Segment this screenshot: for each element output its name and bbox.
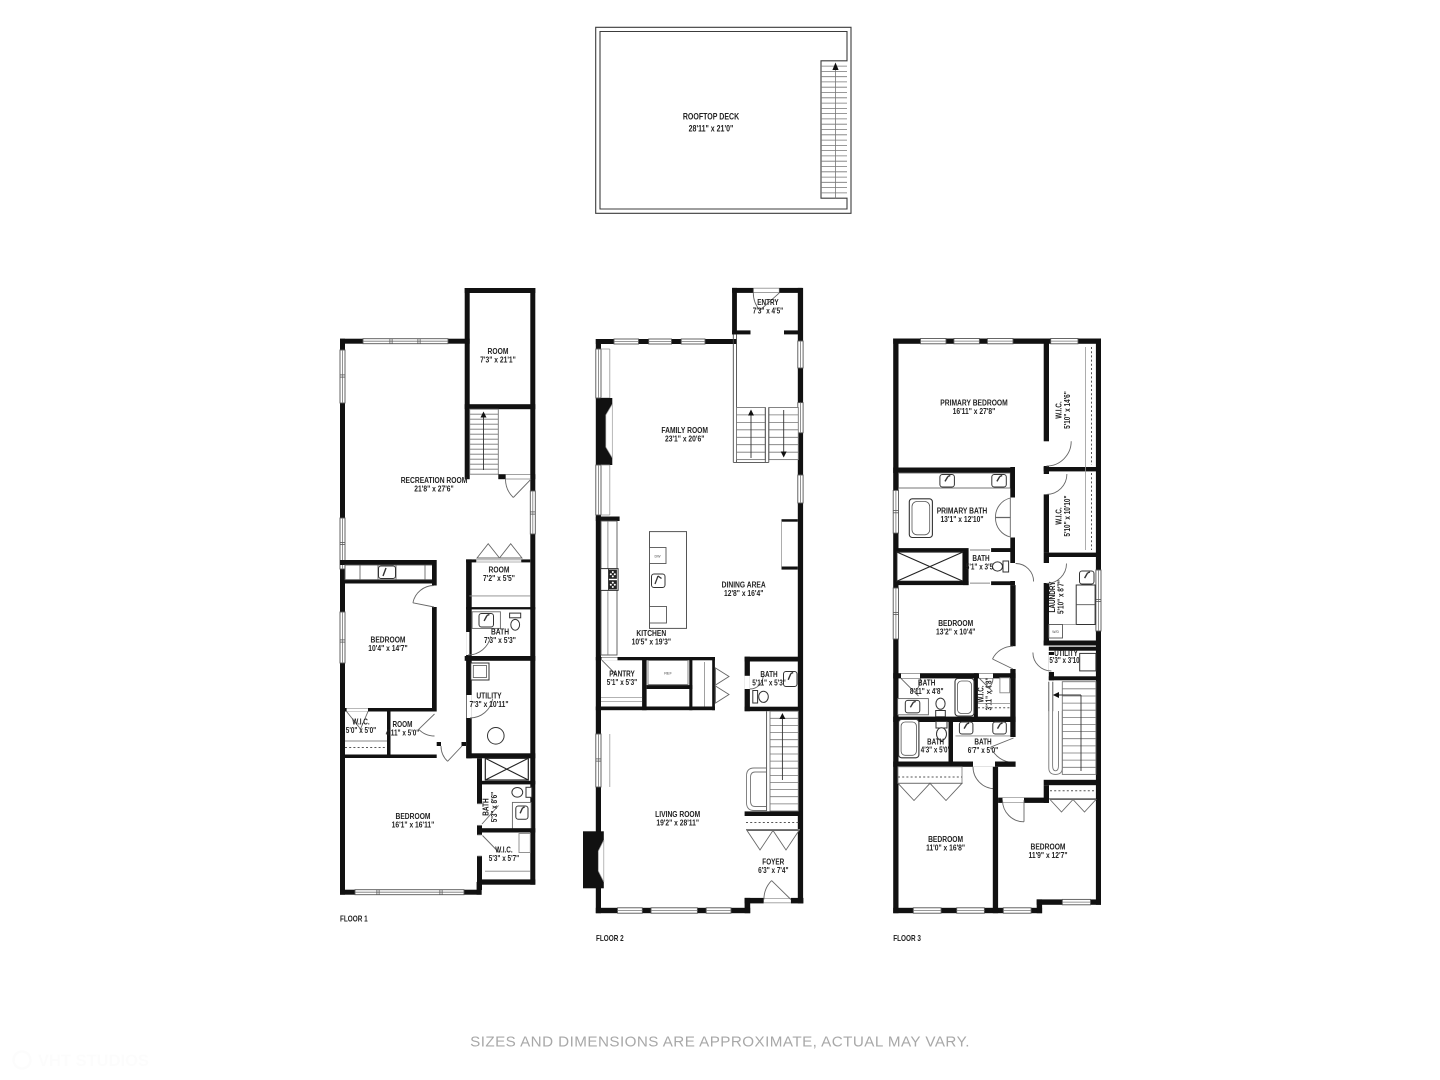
svg-text:6'3" x 7'4": 6'3" x 7'4" bbox=[758, 866, 788, 875]
svg-text:4'11" x 5'0": 4'11" x 5'0" bbox=[386, 728, 420, 737]
svg-text:10'4" x 14'7": 10'4" x 14'7" bbox=[368, 643, 407, 653]
svg-text:7'3" x 4'5": 7'3" x 4'5" bbox=[753, 306, 783, 315]
svg-text:REF: REF bbox=[664, 672, 672, 676]
svg-text:13'1" x 12'10": 13'1" x 12'10" bbox=[940, 514, 983, 524]
svg-text:16'1" x 16'11": 16'1" x 16'11" bbox=[392, 820, 435, 830]
svg-text:FLOOR 3: FLOOR 3 bbox=[893, 934, 921, 943]
svg-text:6'7" x 5'0": 6'7" x 5'0" bbox=[968, 746, 998, 755]
svg-text:23'1" x 20'6": 23'1" x 20'6" bbox=[665, 434, 704, 444]
svg-text:19'2" x 28'11": 19'2" x 28'11" bbox=[656, 818, 699, 828]
svg-text:28'11" x 21'0": 28'11" x 21'0" bbox=[689, 124, 734, 134]
svg-text:5'10" x 10'10": 5'10" x 10'10" bbox=[1063, 495, 1072, 536]
svg-text:5'3" x 5'7": 5'3" x 5'7" bbox=[489, 854, 519, 863]
svg-text:10'5" x 19'3": 10'5" x 19'3" bbox=[632, 637, 671, 647]
svg-text:5'3" x 8'6": 5'3" x 8'6" bbox=[490, 792, 499, 822]
svg-text:11'9" x 12'7": 11'9" x 12'7" bbox=[1029, 850, 1068, 860]
svg-text:W/D: W/D bbox=[1052, 630, 1059, 634]
svg-text:11'0" x 16'8": 11'0" x 16'8" bbox=[926, 843, 965, 853]
svg-text:5'10" x 14'6": 5'10" x 14'6" bbox=[1063, 391, 1072, 429]
svg-text:7'3" x 21'1": 7'3" x 21'1" bbox=[480, 355, 516, 365]
svg-text:7'2" x 5'5": 7'2" x 5'5" bbox=[483, 573, 515, 583]
svg-text:4'3" x 5'0": 4'3" x 5'0" bbox=[921, 746, 951, 755]
svg-text:13'2" x 10'4": 13'2" x 10'4" bbox=[936, 627, 975, 637]
svg-text:FLOOR 1: FLOOR 1 bbox=[340, 915, 368, 924]
svg-text:12'8" x 16'4": 12'8" x 16'4" bbox=[724, 588, 763, 598]
svg-text:5'1" x 3'5": 5'1" x 3'5" bbox=[966, 562, 996, 571]
svg-text:SIZES AND DIMENSIONS ARE APPRO: SIZES AND DIMENSIONS ARE APPROXIMATE, AC… bbox=[470, 1034, 970, 1051]
svg-text:5'10" x 8'7": 5'10" x 8'7" bbox=[1057, 580, 1066, 614]
svg-text:ROOFTOP DECK: ROOFTOP DECK bbox=[683, 112, 740, 122]
svg-text:DW: DW bbox=[655, 555, 662, 559]
svg-text:8'11" x 4'8": 8'11" x 4'8" bbox=[910, 687, 944, 696]
svg-text:7'3" x 10'11": 7'3" x 10'11" bbox=[470, 699, 509, 709]
svg-text:5'1" x 5'3": 5'1" x 5'3" bbox=[607, 678, 637, 687]
svg-text:21'8" x 27'6": 21'8" x 27'6" bbox=[414, 484, 453, 494]
svg-text:5'0" x 5'0": 5'0" x 5'0" bbox=[346, 726, 376, 735]
svg-text:FLOOR 2: FLOOR 2 bbox=[596, 934, 624, 943]
svg-text:5'11" x 5'3": 5'11" x 5'3" bbox=[752, 678, 786, 687]
svg-text:VHT STUDIOS: VHT STUDIOS bbox=[38, 1052, 149, 1070]
svg-text:5'3" x 3'10": 5'3" x 3'10" bbox=[1049, 656, 1082, 665]
svg-text:7'3" x 5'3": 7'3" x 5'3" bbox=[484, 635, 516, 645]
svg-text:16'11" x 27'8": 16'11" x 27'8" bbox=[953, 406, 996, 416]
